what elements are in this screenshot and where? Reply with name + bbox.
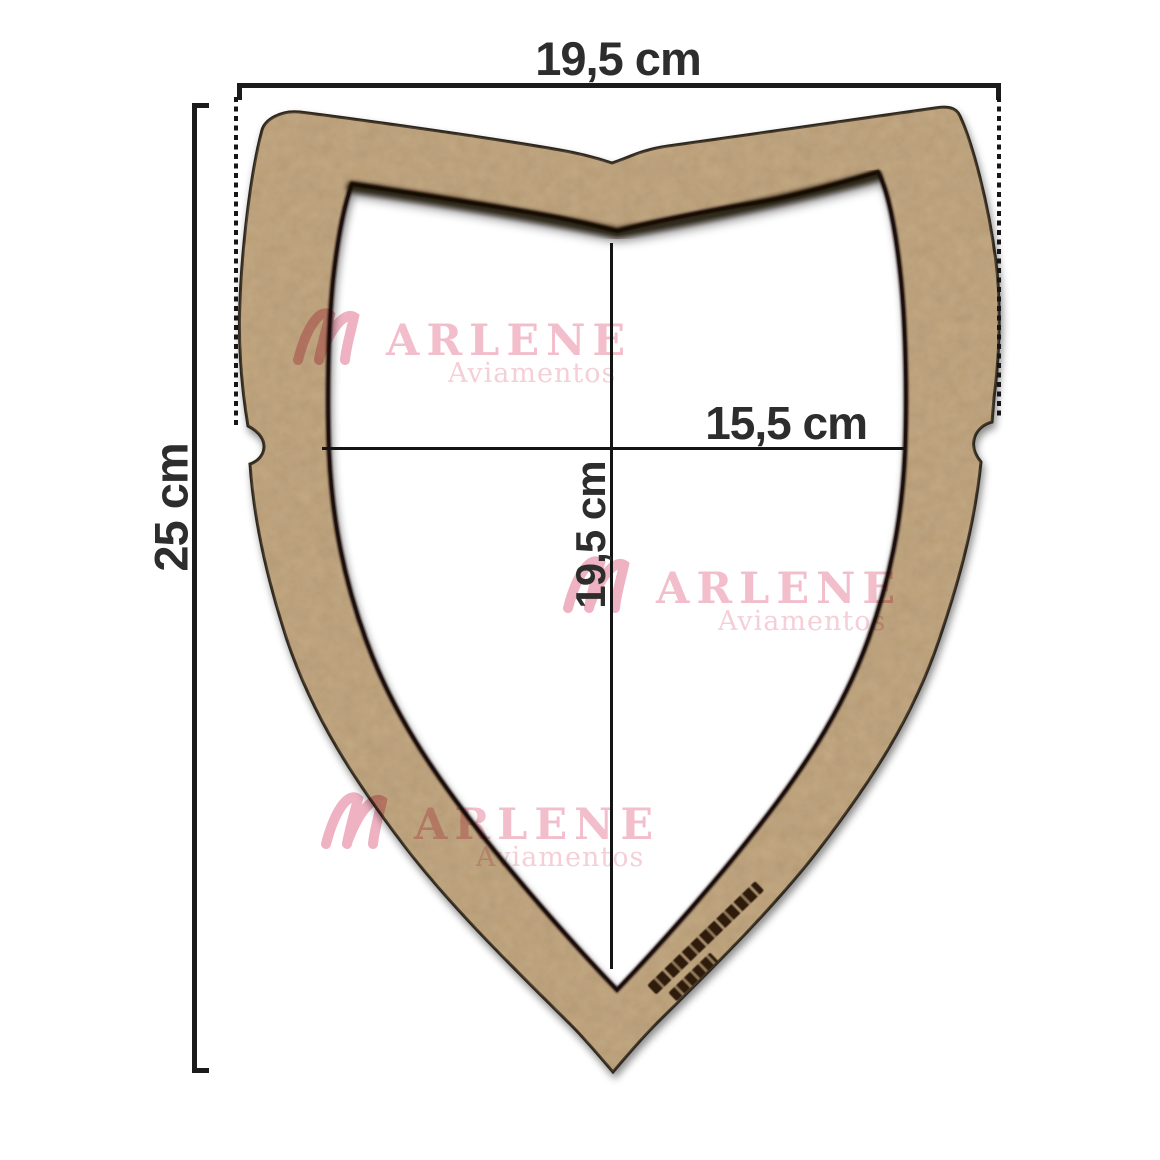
outer-height-label: 25 cm xyxy=(144,388,191,628)
inner-width-label: 15,5 cm xyxy=(617,396,867,450)
extension-dotted-line-left xyxy=(234,97,238,425)
inner-cutout-edge xyxy=(328,172,906,990)
outer-height-dimension-line xyxy=(192,103,197,1073)
dimension-tick xyxy=(192,103,209,108)
outer-width-label: 19,5 cm xyxy=(478,31,758,86)
dimension-tick xyxy=(192,1068,209,1073)
extension-dotted-line-right xyxy=(997,97,1001,419)
product-diagram-canvas: ARLENE Aviamentos ARLENE Aviamentos ARLE… xyxy=(0,0,1160,1160)
inner-height-label: 19,5 cm xyxy=(567,435,611,635)
